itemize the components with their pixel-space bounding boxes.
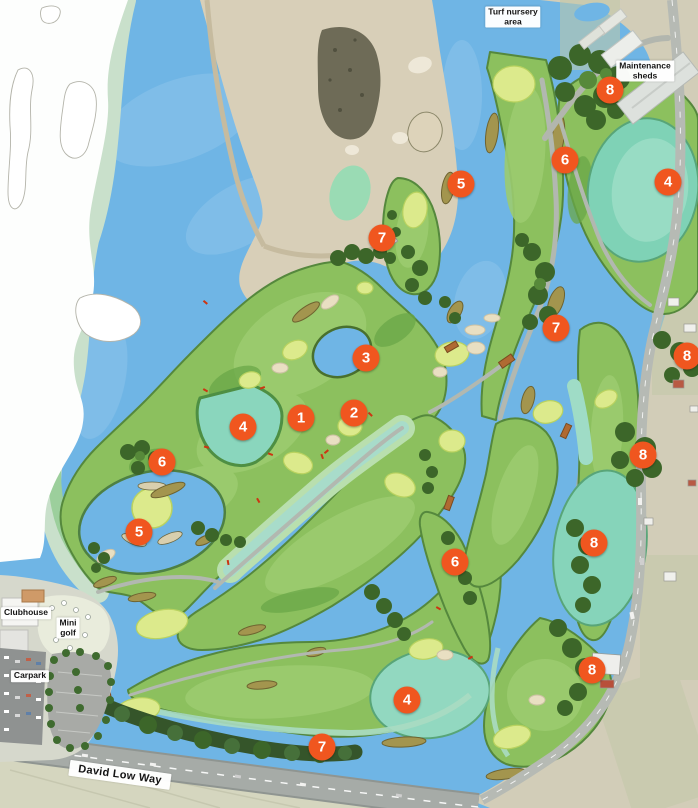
hole-marker-5: 5 (448, 171, 475, 198)
hole-marker-6: 6 (149, 449, 176, 476)
hole-marker-2: 2 (341, 400, 368, 427)
map-label-clubhouse: Clubhouse (1, 607, 51, 619)
hole-marker-5: 5 (126, 519, 153, 546)
hole-marker-7: 7 (309, 734, 336, 761)
hole-marker-8: 8 (581, 530, 608, 557)
hole-marker-8: 8 (579, 657, 606, 684)
hole-marker-7: 7 (369, 225, 396, 252)
golf-course-map: 1234565768478888647Turf nursery areaMain… (0, 0, 698, 808)
hole-marker-4: 4 (230, 414, 257, 441)
map-label-david-low-way: David Low Way (68, 760, 171, 790)
hole-marker-6: 6 (552, 147, 579, 174)
hole-marker-3: 3 (353, 345, 380, 372)
hole-marker-8: 8 (674, 343, 698, 370)
hole-marker-8: 8 (630, 442, 657, 469)
map-label-maintenance-sheds: Maintenance sheds (616, 60, 674, 81)
hole-marker-4: 4 (394, 687, 421, 714)
hole-marker-6: 6 (442, 549, 469, 576)
marker-overlay: 1234565768478888647Turf nursery areaMain… (0, 0, 698, 808)
hole-marker-1: 1 (288, 405, 315, 432)
map-label-carpark: Carpark (11, 670, 49, 682)
hole-marker-8: 8 (597, 77, 624, 104)
hole-marker-7: 7 (543, 315, 570, 342)
map-label-mini-golf: Mini golf (57, 617, 80, 638)
hole-marker-4: 4 (655, 169, 682, 196)
map-label-turf-nursery-area: Turf nursery area (485, 6, 540, 27)
